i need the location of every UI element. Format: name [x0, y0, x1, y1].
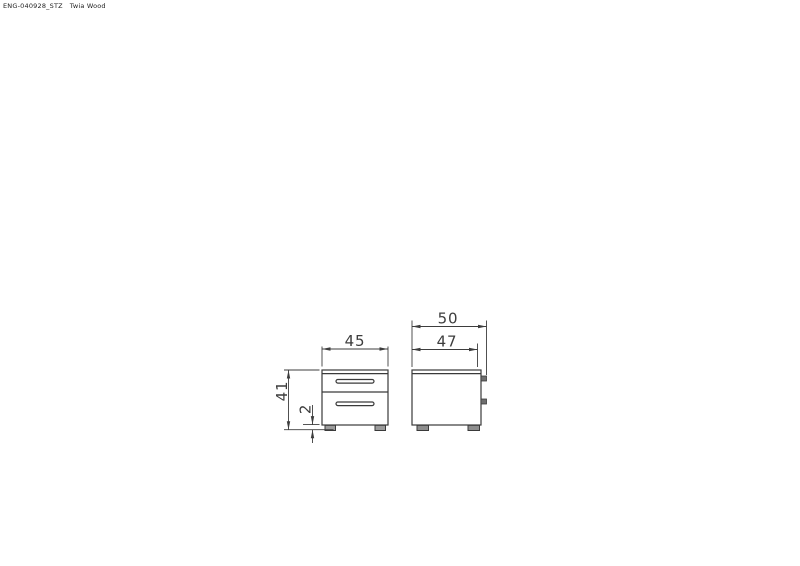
arrowhead-right — [469, 348, 478, 351]
dimension-side-body-depth: 47 — [412, 333, 478, 368]
arrowhead-up — [311, 430, 314, 439]
arrowhead-left — [412, 348, 421, 351]
product-name: Twia Wood — [70, 2, 106, 10]
document-code: ENG-040928_STZ — [3, 2, 63, 10]
drawing-page: ENG-040928_STZTwia Wood 45 — [0, 0, 800, 566]
side-lower-handle-tab — [481, 399, 487, 404]
arrowhead-down — [311, 416, 314, 425]
side-view — [412, 370, 487, 431]
technical-drawing: 45 41 2 — [0, 0, 800, 566]
arrowhead-top — [287, 370, 290, 379]
arrowhead-right — [478, 325, 487, 328]
arrowhead-left — [412, 325, 421, 328]
dimension-front-width: 45 — [322, 332, 388, 367]
side-upper-handle-tab — [481, 376, 487, 381]
front-right-foot — [375, 425, 386, 430]
dimension-label-side-overall-depth: 50 — [438, 310, 459, 328]
side-cabinet-body — [412, 370, 481, 425]
arrowhead-bottom — [287, 421, 290, 430]
front-view — [322, 370, 388, 431]
side-back-foot — [417, 425, 429, 430]
front-lower-drawer-handle — [336, 402, 374, 406]
side-front-foot — [468, 425, 480, 430]
front-upper-drawer-handle — [336, 380, 374, 384]
title-block: ENG-040928_STZTwia Wood — [3, 2, 106, 10]
dimension-label-front-height: 41 — [273, 381, 291, 402]
arrowhead-right — [380, 347, 389, 350]
dimension-label-side-body-depth: 47 — [437, 333, 458, 351]
front-cabinet-body — [322, 370, 388, 425]
dimension-label-foot-height: 2 — [297, 404, 315, 414]
dimension-label-front-width: 45 — [345, 332, 366, 350]
arrowhead-left — [322, 347, 331, 350]
dimension-foot-height: 2 — [297, 404, 320, 443]
